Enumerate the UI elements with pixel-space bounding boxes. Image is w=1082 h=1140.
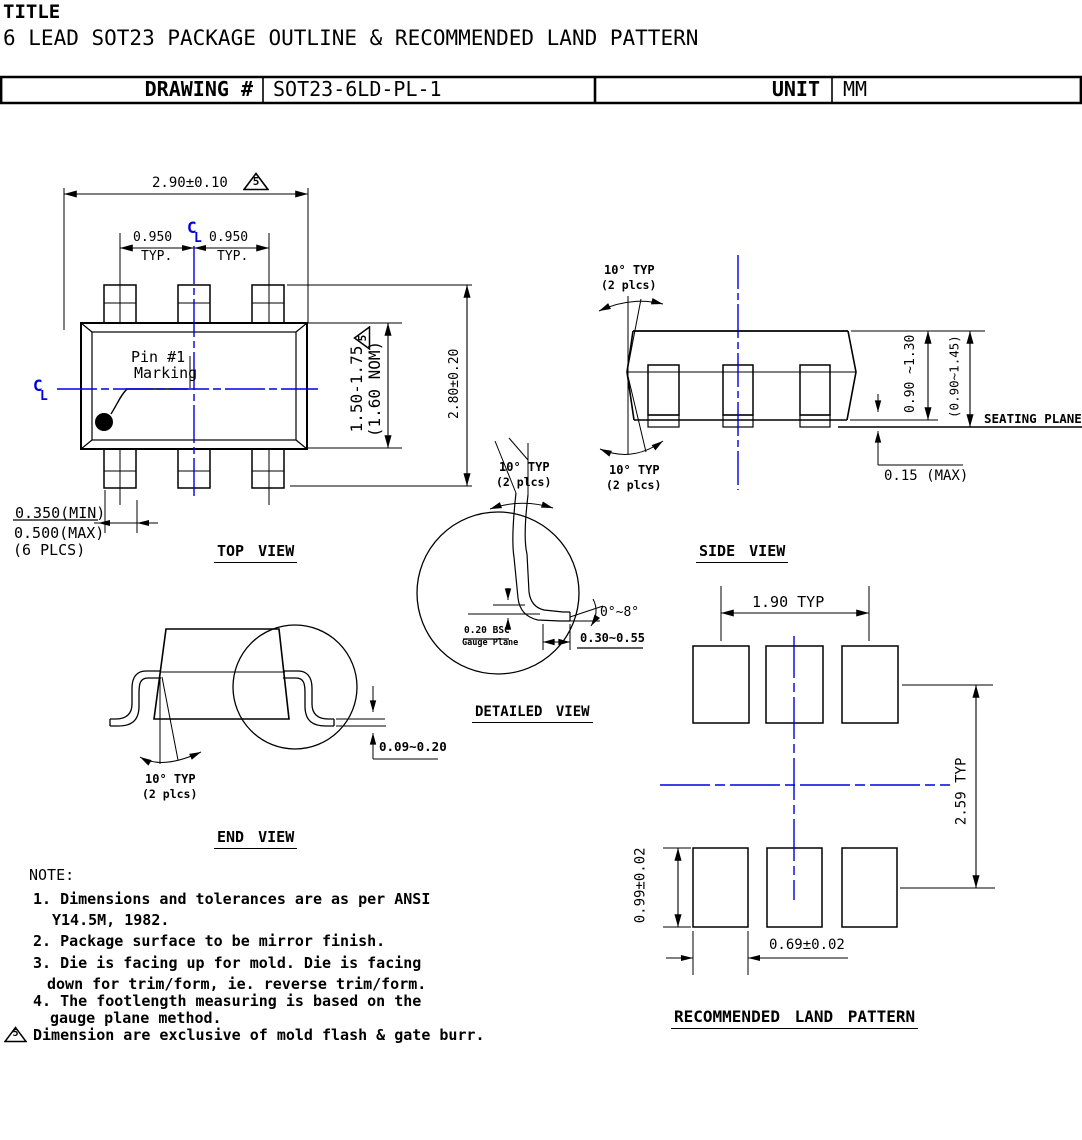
note-line: 1. Dimensions and tolerances are as per …	[33, 892, 430, 908]
side-view-drawing	[599, 296, 1082, 465]
land-pitch-dim: 1.90 TYP	[752, 595, 824, 611]
end-view-caption: END VIEW	[214, 830, 297, 849]
pin1-marking-dot	[95, 413, 113, 431]
side-angle-bottom: 10° TYP	[609, 464, 660, 477]
pitch-right-typ: TYP.	[217, 250, 248, 264]
land-pattern-caption: RECOMMENDED LAND PATTERN	[671, 1009, 918, 1029]
land-row-span-dim: 2.59 TYP	[955, 753, 970, 829]
side-angle-top-plcs: (2 plcs)	[601, 279, 656, 291]
standoff-dim: 0.15 (MAX)	[884, 469, 968, 484]
lead-thickness-dim: 0.09~0.20	[379, 740, 447, 753]
centerline-symbol-top: C L	[187, 218, 202, 246]
seating-plane-label: SEATING PLANE	[984, 412, 1082, 425]
drawing-number-value: SOT23-6LD-PL-1	[273, 79, 442, 100]
note5-flag-icon: 5	[353, 326, 375, 350]
pitch-left-dim: 0.950	[133, 231, 172, 245]
centerlines	[57, 246, 950, 900]
gauge-dim: 0.20 BSC	[464, 626, 510, 636]
detailed-view-caption: DETAILED VIEW	[472, 705, 593, 723]
note-line: Dimension are exclusive of mold flash & …	[33, 1028, 485, 1044]
foot-length-dim: 0.30~0.55	[580, 632, 645, 645]
pad-width-dim: 0.69±0.02	[769, 938, 845, 953]
lead-width-min: 0.350(MIN)	[15, 506, 105, 522]
body-height-dim: 0.90 ~1.30	[904, 331, 918, 417]
note-line: 4. The footlength measuring is based on …	[33, 994, 421, 1010]
note-line: 3. Die is facing up for mold. Die is fac…	[33, 956, 421, 972]
drawing-title: 6 LEAD SOT23 PACKAGE OUTLINE & RECOMMEND…	[3, 27, 698, 49]
end-angle-plcs: (2 plcs)	[142, 788, 197, 800]
lead-width-plcs: (6 PLCS)	[13, 543, 85, 559]
note5-flag-icon: 5	[4, 1026, 27, 1047]
total-height-dim: (0.90~1.45)	[947, 331, 960, 423]
note-line: 2. Package surface to be mirror finish.	[33, 934, 385, 950]
body-length-dim: 1.50-1.75(1.60 NOM)	[348, 334, 384, 444]
detail-angle-plcs: (2 plcs)	[496, 476, 551, 488]
note5-flag-icon: 5	[243, 172, 269, 195]
pitch-right-dim: 0.950	[209, 231, 248, 245]
title-label: TITLE	[3, 3, 60, 23]
lead-width-max: 0.500(MAX)	[14, 526, 104, 542]
detail-angle: 10° TYP	[499, 461, 550, 474]
unit-label: UNIT	[680, 79, 820, 100]
centerline-symbol-left: C L	[33, 376, 48, 404]
gauge-plane-label: Gauge Plane	[462, 639, 518, 648]
svg-text:L: L	[194, 231, 202, 246]
side-angle-top: 10° TYP	[604, 264, 655, 277]
note-line: down for trim/form, ie. reverse trim/for…	[47, 977, 426, 993]
unit-value: MM	[843, 79, 867, 100]
pin1-label-line2: Marking	[134, 366, 197, 382]
land-pattern-drawing	[663, 586, 995, 975]
note-line: gauge plane method.	[50, 1011, 222, 1027]
pitch-left-typ: TYP.	[141, 250, 172, 264]
side-view-caption: SIDE VIEW	[696, 544, 788, 563]
overall-length-dim: 2.80±0.20	[448, 339, 462, 429]
lead-angle-dim: 0°~8°	[600, 606, 639, 620]
side-angle-bottom-plcs: (2 plcs)	[606, 479, 661, 491]
end-angle: 10° TYP	[145, 773, 196, 786]
top-view-width-dim: 2.90±0.10	[152, 176, 228, 191]
note-line: Y14.5M, 1982.	[52, 913, 169, 929]
drawing-sheet: C L C L TITLE 6 LEAD SOT23 PACKAGE OUTLI…	[0, 0, 1082, 1140]
svg-text:L: L	[40, 389, 48, 404]
notes-heading: NOTE:	[29, 868, 74, 884]
pad-height-dim: 0.99±0.02	[634, 845, 649, 925]
top-view-caption: TOP VIEW	[214, 544, 297, 563]
drawing-number-label: DRAWING #	[100, 79, 253, 100]
